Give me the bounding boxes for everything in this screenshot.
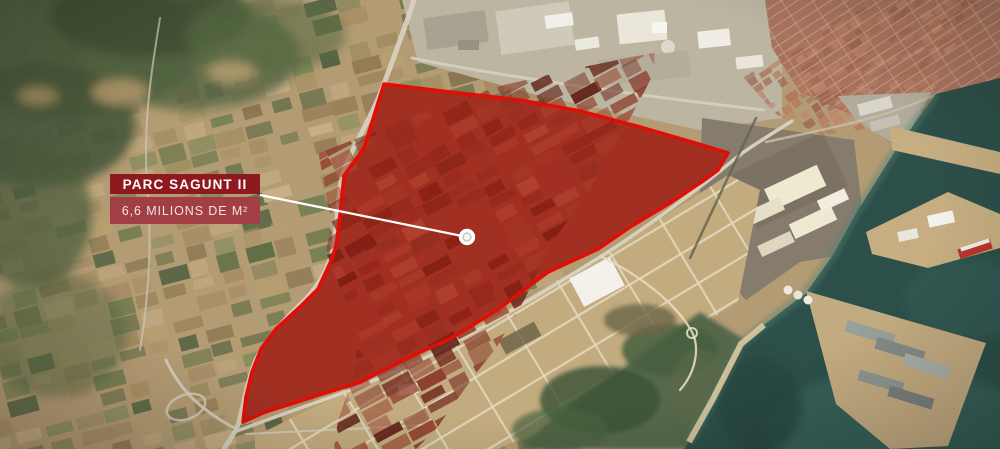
callout-title: PARC SAGUNT II (110, 174, 260, 194)
storage-tank (794, 291, 803, 300)
callout-label: PARC SAGUNT II 6,6 MILIONS DE M² (110, 174, 260, 224)
satellite-map-image (0, 0, 1000, 449)
storage-tank (804, 296, 813, 305)
callout-subtitle: 6,6 MILIONS DE M² (110, 197, 260, 224)
location-marker-center (463, 233, 471, 241)
storage-tank (784, 286, 793, 295)
satellite-map: PARC SAGUNT II 6,6 MILIONS DE M² (0, 0, 1000, 449)
